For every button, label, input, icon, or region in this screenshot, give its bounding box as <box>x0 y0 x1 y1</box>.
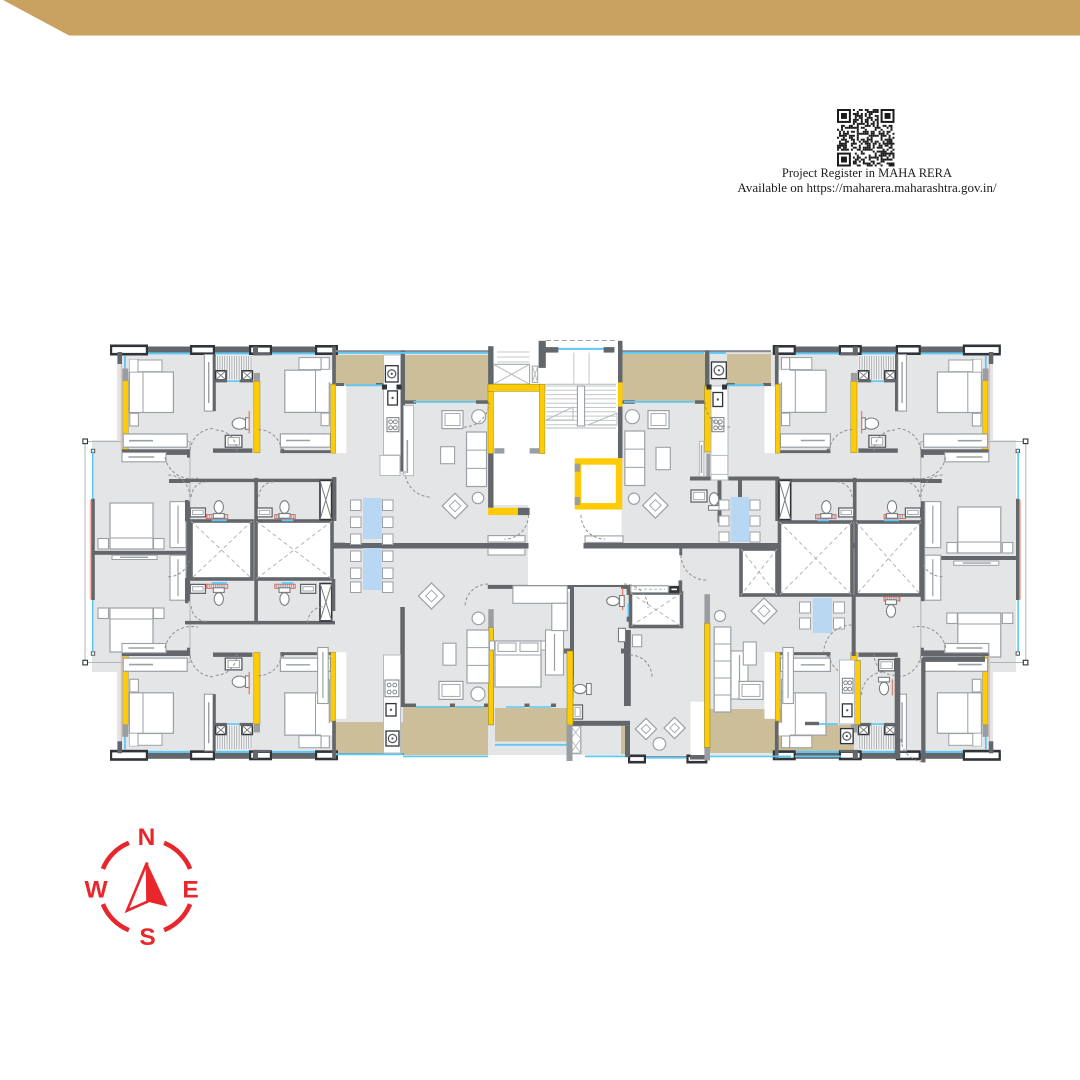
svg-text:N: N <box>138 824 156 851</box>
svg-text:E: E <box>182 877 198 904</box>
svg-text:W: W <box>84 877 108 904</box>
svg-text:S: S <box>139 924 155 951</box>
